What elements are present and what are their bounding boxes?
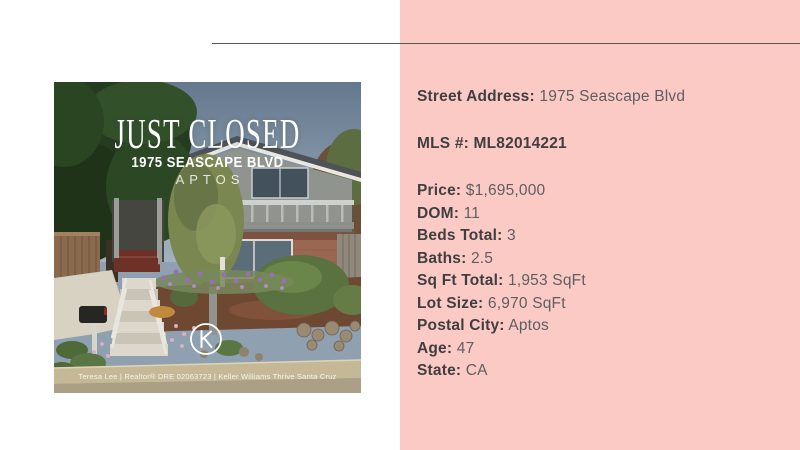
detail-label: Beds Total: bbox=[417, 227, 502, 244]
detail-value: 6,970 SqFt bbox=[488, 295, 566, 312]
detail-label: Lot Size: bbox=[417, 295, 483, 312]
detail-row-sqft: Sq Ft Total: 1,953 SqFt bbox=[417, 270, 782, 293]
detail-row-state: State: CA bbox=[417, 360, 782, 383]
agent-attribution: Teresa Lee | Realtor® DRE 02063723 | Kel… bbox=[54, 372, 361, 381]
detail-label: Postal City: bbox=[417, 317, 505, 334]
detail-label: Baths: bbox=[417, 250, 466, 267]
detail-row-postal-city: Postal City: Aptos bbox=[417, 315, 782, 338]
detail-value: $1,695,000 bbox=[466, 182, 546, 199]
top-divider bbox=[212, 43, 800, 44]
detail-row-dom: DOM: 11 bbox=[417, 203, 782, 226]
details-panel: Street Address: 1975 Seascape Blvd MLS #… bbox=[400, 0, 800, 450]
detail-value: 2.5 bbox=[471, 250, 493, 267]
keller-williams-k-icon bbox=[189, 322, 223, 356]
detail-value: ML82014221 bbox=[474, 135, 567, 152]
detail-label: Age: bbox=[417, 340, 452, 357]
detail-value: 3 bbox=[507, 227, 516, 244]
property-photo-card: JUST CLOSED 1975 SEASCAPE BLVD APTOS Ter… bbox=[54, 82, 361, 393]
detail-label: Street Address: bbox=[417, 88, 535, 105]
detail-value: 11 bbox=[464, 205, 481, 222]
detail-label: MLS #: bbox=[417, 135, 469, 152]
detail-row-beds: Beds Total: 3 bbox=[417, 225, 782, 248]
detail-value: 47 bbox=[457, 340, 475, 357]
detail-label: Price: bbox=[417, 182, 461, 199]
purple-flowers bbox=[154, 270, 294, 295]
detail-value: CA bbox=[466, 362, 488, 379]
detail-row-lot-size: Lot Size: 6,970 SqFt bbox=[417, 293, 782, 316]
detail-row-age: Age: 47 bbox=[417, 338, 782, 361]
photo-address-line: 1975 SEASCAPE BLVD bbox=[72, 154, 342, 171]
rock-wall bbox=[297, 321, 360, 351]
detail-label: DOM: bbox=[417, 205, 459, 222]
detail-row-baths: Baths: 2.5 bbox=[417, 248, 782, 271]
detail-label: Sq Ft Total: bbox=[417, 272, 504, 289]
detail-row-street-address: Street Address: 1975 Seascape Blvd bbox=[417, 86, 782, 109]
detail-value: 1,953 SqFt bbox=[508, 272, 586, 289]
detail-value: Aptos bbox=[508, 317, 549, 334]
just-closed-headline: JUST CLOSED bbox=[109, 114, 305, 156]
photo-city-line: APTOS bbox=[54, 172, 361, 187]
detail-label: State: bbox=[417, 362, 461, 379]
detail-row-mls: MLS #: ML82014221 bbox=[417, 133, 782, 156]
detail-row-price: Price: $1,695,000 bbox=[417, 180, 782, 203]
page: Street Address: 1975 Seascape Blvd MLS #… bbox=[0, 0, 800, 450]
detail-value: 1975 Seascape Blvd bbox=[539, 88, 685, 105]
